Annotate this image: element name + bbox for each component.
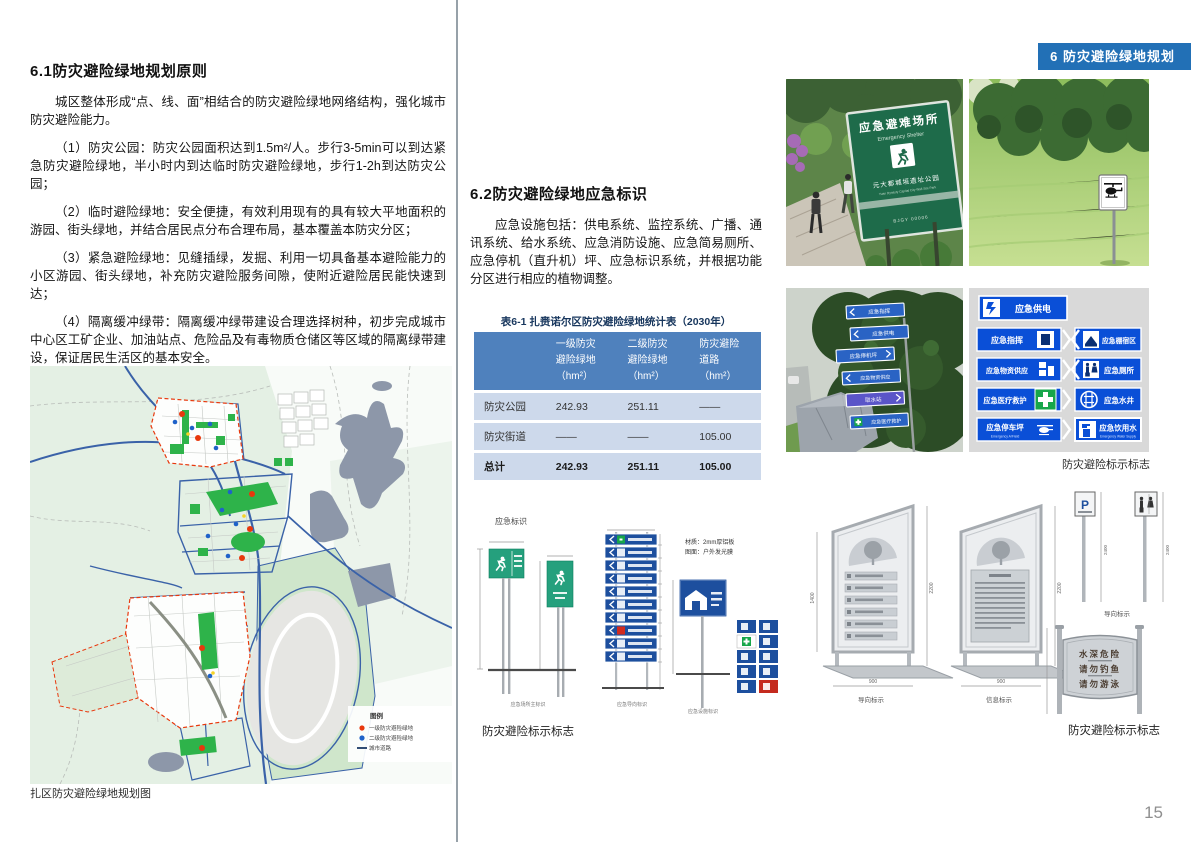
caption-info-sign: 信息标示 (986, 695, 1013, 704)
svg-text:1400: 1400 (810, 592, 816, 603)
legend-level1-dot (359, 725, 364, 730)
table-header-empty (474, 332, 546, 390)
section-6-1-heading: 6.1防灾避险绿地规划原则 (30, 60, 446, 81)
caption-site-sign: 应急场所主标识 (510, 701, 545, 708)
paragraph: （4）隔离缓冲绿带：隔离缓冲绿带建设合理选择树种，初步完成城市中心区工矿企业、加… (30, 313, 446, 367)
shelter-facility-sign (673, 580, 730, 708)
row-label: 防灾公园 (474, 393, 546, 420)
svg-text:900: 900 (997, 679, 1006, 685)
table-header-level2: 二级防灾 避险绿地 （hm²） (618, 332, 690, 390)
table-header-row: 一级防灾 避险绿地 （hm²） 二级防灾 避险绿地 （hm²） 防灾避险 道路 … (474, 332, 761, 390)
sign-medical: 应急医疗救护 (977, 388, 1070, 411)
cell: 242.93 (546, 453, 618, 480)
svg-text:应急棚宿区: 应急棚宿区 (1102, 336, 1136, 345)
sign-supplies: 应急物资供应 (977, 358, 1070, 381)
cell: 242.93 (546, 393, 618, 420)
shelter-sign-board: 应急避难场所 Emergency Shelter 元大都城垣遗址公园 Yuan … (847, 101, 963, 240)
table-title: 表6-1 扎赉诺尔区防灾避险绿地统计表（2030年） (470, 314, 762, 329)
emergency-site-sign-small (540, 556, 573, 697)
chapter-tab: 6 防灾避险绿地规划 (1038, 43, 1191, 70)
svg-text:900: 900 (869, 679, 878, 685)
helipad-sign-board (1099, 175, 1127, 210)
facility-icon-grid (737, 620, 778, 693)
legend-level2-dot (359, 735, 364, 740)
map-legend-title: 图例 (370, 711, 384, 720)
caption-directional-sign: 应急导向标识 (617, 701, 647, 708)
column-divider (456, 0, 458, 842)
svg-text:2200: 2200 (1057, 582, 1063, 593)
directional-sign-stack (602, 530, 664, 690)
svg-text:2400: 2400 (1103, 544, 1108, 555)
sign-drinking-water: 应急饮用水 Emergency Water Supply (1075, 418, 1141, 441)
emergency-sign-panel: 应急供电 应急指挥 应急棚宿区 应急物资供应 (969, 288, 1149, 452)
sign-power-supply: 应急供电 (979, 296, 1067, 320)
pole-sign-toilet: 2400 (1135, 492, 1170, 602)
section-6-2-heading: 6.2防灾避险绿地应急标识 (470, 183, 762, 204)
svg-text:应急水井: 应急水井 (1104, 395, 1134, 405)
pole-sign-parking: P 2400 (1075, 492, 1108, 602)
cell: —— (689, 393, 761, 420)
paragraph: （1）防灾公园：防灾公园面积达到1.5m²/人。步行3-5min可以到达紧急防灾… (30, 139, 446, 193)
surface-note: 图面：户外发光膜 (685, 548, 733, 556)
signage-diagram: 应急标识 (470, 506, 800, 720)
svg-text:应急物资供应: 应急物资供应 (986, 366, 1028, 375)
cell: 105.00 (689, 423, 761, 450)
paragraph: 城区整体形成“点、线、面”相结合的防灾避险绿地网络结构，强化城市防灾避险能力。 (30, 93, 446, 129)
map-caption: 扎区防灾避险绿地规划图 (30, 785, 151, 801)
water-warning-sign: 水深危险 请勿钓鱼 请勿游泳 (1047, 625, 1144, 714)
cell: 251.11 (618, 393, 690, 420)
cell: 251.11 (618, 453, 690, 480)
photo-helipad-sign (969, 79, 1149, 266)
sign-panel-caption: 防灾避险标示标志 (1060, 456, 1150, 472)
chapter-tab-label: 6 防灾避险绿地规划 (1050, 49, 1175, 64)
cell: 105.00 (689, 453, 761, 480)
sign-toilet: 应急厕所 (1072, 358, 1141, 381)
section-6-2: 6.2防灾避险绿地应急标识 应急设施包括：供电系统、监控系统、广播、通讯系统、给… (470, 183, 762, 298)
table-total-row: 总计 242.93 251.11 105.00 (474, 453, 761, 480)
svg-text:2200: 2200 (929, 582, 935, 593)
svg-text:P: P (1081, 498, 1089, 512)
photo-directional-signpost: 应急指挥 应急供电 应急停机坪 应急物资供应 取水站 应急医疗救护 (786, 288, 963, 452)
caption-facility-sign: 应急设施标识 (688, 708, 718, 715)
legend-road-label: 城市道路 (369, 744, 392, 752)
legend-level2-label: 二级防灾避险绿地 (369, 734, 414, 742)
svg-text:Emergency Water Supply: Emergency Water Supply (1100, 435, 1136, 439)
paragraph: 应急设施包括：供电系统、监控系统、广播、通讯系统、给水系统、应急消防设施、应急简… (470, 216, 762, 288)
planning-map-figure: 图例 一级防灾避险绿地 二级防灾避险绿地 城市道路 (30, 366, 452, 784)
svg-text:请勿钓鱼: 请勿钓鱼 (1079, 664, 1121, 674)
emergency-site-sign-large (477, 542, 524, 694)
row-label: 防灾街道 (474, 423, 546, 450)
sign-parking-apron: 应急停车坪 Emergency A/Field (977, 418, 1070, 441)
metal-sign-diagrams: 1400 2200 900 导向标示 2200 (805, 480, 1190, 720)
planning-map: 图例 一级防灾避险绿地 二级防灾避险绿地 城市道路 (30, 366, 452, 784)
svg-text:请勿游泳: 请勿游泳 (1079, 679, 1121, 689)
signage-label: 应急标识 (495, 516, 527, 526)
svg-text:2400: 2400 (1165, 544, 1170, 555)
signage-main-caption: 防灾避险标示标志 (482, 723, 574, 739)
caption-guide-sign: 导向标示 (858, 695, 885, 704)
table-6-1: 一级防灾 避险绿地 （hm²） 二级防灾 避险绿地 （hm²） 防灾避险 道路 … (474, 329, 761, 483)
svg-text:应急停车坪: 应急停车坪 (986, 422, 1024, 432)
cell: —— (618, 423, 690, 450)
svg-text:应急厕所: 应急厕所 (1104, 365, 1134, 375)
caption-pole-signs: 导向标示 (1104, 609, 1131, 618)
svg-text:应急医疗救护: 应急医疗救护 (983, 396, 1026, 405)
row-label: 总计 (474, 453, 546, 480)
svg-text:应急饮用水: 应急饮用水 (1099, 423, 1137, 433)
svg-text:Emergency A/Field: Emergency A/Field (991, 435, 1020, 439)
table-header-level1: 一级防灾 避险绿地 （hm²） (546, 332, 618, 390)
sign-command: 应急指挥 (977, 328, 1070, 351)
svg-text:应急指挥: 应急指挥 (991, 335, 1023, 345)
table-row: 防灾街道 —— —— 105.00 (474, 423, 761, 450)
paragraph: （3）紧急避险绿地：见缝插绿，发掘、利用一切具备基本避险能力的小区游园、街头绿地… (30, 249, 446, 303)
page-number: 15 (1144, 803, 1163, 823)
photo-emergency-shelter-sign: 应急避难场所 Emergency Shelter 元大都城垣遗址公园 Yuan … (786, 79, 963, 266)
metal-signs-caption: 防灾避险标示标志 (1068, 722, 1160, 738)
material-note: 材质：2mm厚铝板 (685, 538, 734, 546)
sign-shelter-area: 应急棚宿区 (1072, 328, 1141, 351)
guide-sign-structure: 1400 2200 900 导向标示 (810, 506, 953, 704)
sign-water-well: 应急水井 (1075, 388, 1141, 411)
paragraph: （2）临时避险绿地：安全便捷，有效利用现有的具有较大平地面积的游园、街头绿地，并… (30, 203, 446, 239)
svg-text:应急供电: 应急供电 (1015, 303, 1051, 314)
table-row: 防灾公园 242.93 251.11 —— (474, 393, 761, 420)
table-header-road: 防灾避险 道路 （hm²） (689, 332, 761, 390)
document-page: 6 防灾避险绿地规划 6.1防灾避险绿地规划原则 城区整体形成“点、线、面”相结… (0, 0, 1191, 842)
map-legend: 图例 一级防灾避险绿地 二级防灾避险绿地 城市道路 (348, 706, 452, 762)
cell: —— (546, 423, 618, 450)
legend-level1-label: 一级防灾避险绿地 (369, 724, 414, 732)
svg-text:水深危险: 水深危险 (1078, 649, 1121, 659)
